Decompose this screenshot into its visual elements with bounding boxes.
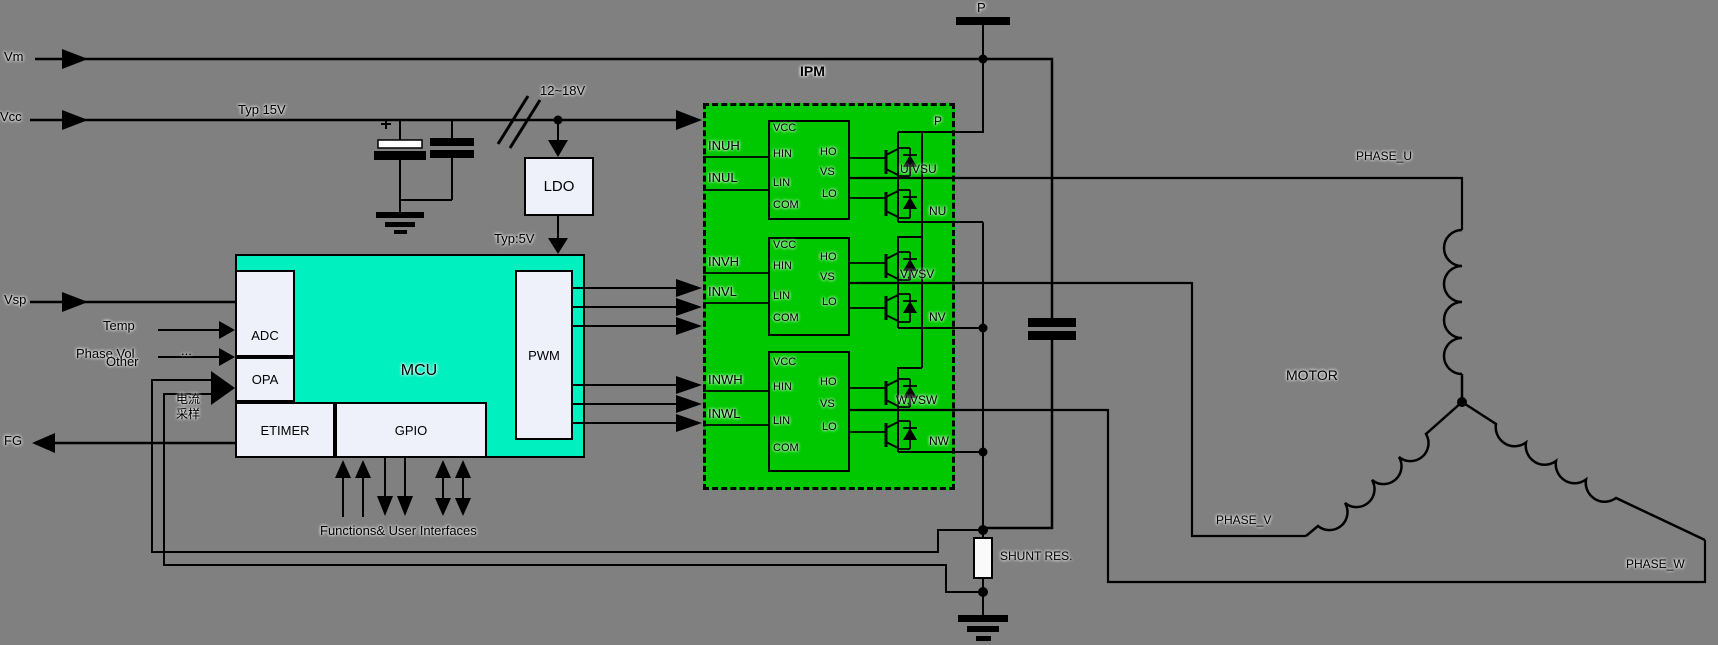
filter-capacitors [374, 119, 474, 234]
w-vsw-label: W,VSW [896, 394, 937, 407]
opa-block: OPA [235, 357, 295, 402]
pwm-output-wires [573, 279, 702, 432]
inwh-label: INWH [708, 373, 743, 387]
ceramic-cap-icon [430, 138, 474, 146]
phase-lines-and-motor [850, 178, 1705, 582]
driver-v-pin-hin: HIN [773, 260, 792, 272]
temp-label: Temp [103, 319, 135, 333]
fg-arrow-icon [32, 433, 55, 453]
ground-icon [958, 615, 1008, 641]
etimer-label: ETIMER [260, 423, 309, 438]
temp-arrow-icon [219, 321, 235, 339]
vcc-rail [30, 96, 702, 148]
driver-w-pin-com: COM [773, 442, 799, 454]
pwm-block: PWM [515, 270, 573, 440]
nu-label: NU [929, 205, 946, 218]
other-label: Other [106, 355, 139, 369]
driver-v-pin-vcc: VCC [773, 239, 796, 251]
ldo-out-arrow-icon [548, 238, 568, 254]
driver-u-pin-com: COM [773, 199, 799, 211]
junction-dot [978, 587, 988, 597]
motor-title: MOTOR [1286, 368, 1338, 383]
ldo-in-arrow-icon [548, 140, 568, 157]
pwm-label: PWM [528, 348, 560, 363]
fg-label: FG [4, 434, 22, 448]
junction-dot [979, 324, 988, 333]
driver-w-pin-vcc: VCC [773, 356, 796, 368]
driver-v-pin-lo: LO [822, 296, 837, 308]
driver-u-pin-hin: HIN [773, 148, 792, 160]
phase-u-label: PHASE_U [1356, 150, 1412, 163]
driver-w-pin-ho: HO [820, 376, 837, 388]
gpio-block: GPIO [335, 402, 487, 458]
vsp-label: Vsp [4, 293, 26, 307]
ipm-pin-p-label: P [934, 115, 942, 128]
driver-w-pin-lin: LIN [773, 415, 790, 427]
driver-u-pin-ho: HO [820, 146, 837, 158]
driver-u-pin-lo: LO [822, 188, 837, 200]
shunt-resistor-icon [974, 538, 992, 578]
driver-w-pin-hin: HIN [773, 381, 792, 393]
junction-dot [979, 448, 988, 457]
inul-label: INUL [708, 171, 738, 185]
vm-arrow-icon [62, 49, 88, 69]
phase-vol-arrow-icon [219, 348, 235, 366]
electrolytic-cap-icon [378, 140, 422, 148]
typ-15v-label: Typ 15V [238, 103, 286, 117]
p-terminal-bar-icon [956, 17, 1010, 25]
motor-drive-block-diagram: LDO ADC OPA ETIMER GPIO PWM MCU IPM [0, 0, 1718, 645]
driver-u-pin-vs: VS [820, 166, 835, 178]
current-sense-cn-label-2: 采样 [176, 408, 200, 421]
plus-sign-icon [381, 119, 391, 129]
ldo-block: LDO [524, 157, 594, 216]
invl-label: INVL [708, 285, 737, 299]
gpio-label: GPIO [395, 423, 428, 438]
inputs-ellipsis-label: ... [181, 344, 192, 358]
gpio-arrows [335, 458, 471, 517]
range-12-18v-label: 12~18V [540, 84, 585, 98]
invh-label: INVH [708, 255, 739, 269]
ldo-label: LDO [544, 178, 575, 195]
vsp-arrow-icon [62, 292, 88, 312]
dc-bus-capacitor-icon [1028, 318, 1076, 327]
u-vsu-label: U,VSU [900, 163, 937, 176]
nv-label: NV [929, 311, 946, 324]
phase-v-label: PHASE_V [1216, 514, 1271, 527]
shunt-resistor-symbol [958, 525, 1008, 641]
motor-star-point [1457, 397, 1467, 407]
junction-dot [979, 55, 988, 64]
vcc-to-ipm-arrow-icon [676, 110, 702, 130]
ipm-title: IPM [800, 64, 825, 79]
junction-dot [554, 116, 563, 125]
vcc-arrow-icon [62, 110, 88, 130]
motor-winding-v-icon [1306, 402, 1462, 536]
driver-w-pin-vs: VS [820, 398, 835, 410]
opa-label: OPA [252, 372, 279, 387]
current-sense-cn-label-1: 电流 [176, 393, 200, 406]
ground-icon [376, 212, 424, 234]
driver-v-pin-lin: LIN [773, 290, 790, 302]
junction-dot [978, 525, 988, 535]
opa-arrow-icon [211, 371, 235, 405]
shunt-res-label: SHUNT RES. [1000, 550, 1072, 563]
inwl-label: INWL [708, 407, 741, 421]
phase-w-wire [850, 410, 1705, 582]
driver-v-pin-vs: VS [820, 271, 835, 283]
etimer-block: ETIMER [235, 402, 335, 458]
adc-block: ADC [235, 270, 295, 357]
motor-winding-w-icon [1462, 402, 1705, 540]
v-vsv-label: V,VSV [900, 268, 934, 281]
driver-u-pin-lin: LIN [773, 177, 790, 189]
vm-label: Vm [4, 50, 24, 64]
driver-w-pin-lo: LO [822, 421, 837, 433]
typ-5v-label: Typ:5V [494, 232, 534, 246]
functions-label: Functions& User Interfaces [320, 524, 477, 538]
driver-v-pin-ho: HO [820, 251, 837, 263]
mcu-title: MCU [319, 362, 519, 380]
wire-break-icon [498, 96, 540, 148]
adc-label: ADC [251, 328, 278, 343]
inuh-label: INUH [708, 139, 740, 153]
driver-u-pin-vcc: VCC [773, 122, 796, 134]
vcc-label: Vcc [0, 110, 22, 124]
nw-label: NW [929, 435, 949, 448]
p-terminal-label: P [977, 1, 986, 15]
motor-winding-u-icon [1444, 230, 1462, 402]
driver-v-pin-com: COM [773, 312, 799, 324]
phase-w-label: PHASE_W [1626, 558, 1685, 571]
